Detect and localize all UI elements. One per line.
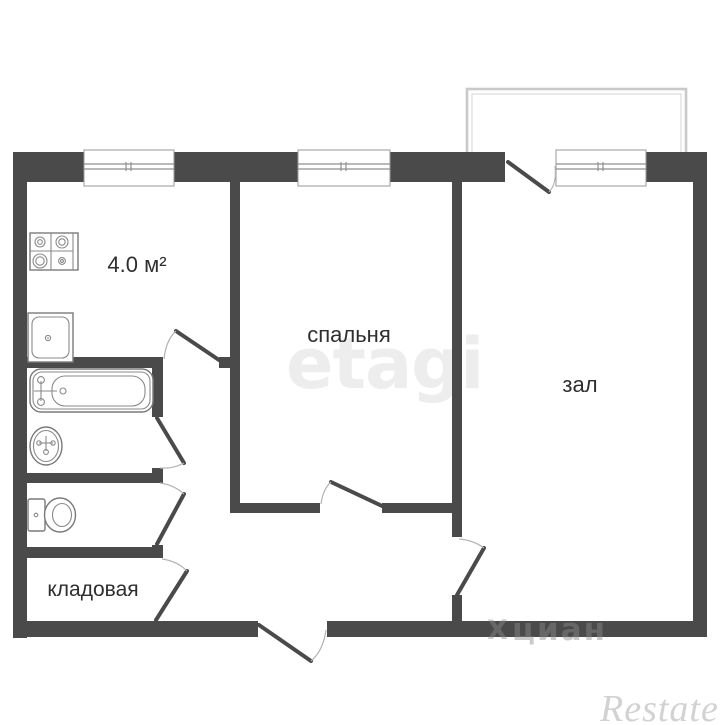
- toilet-door: [157, 483, 184, 544]
- bedroom-window: [298, 150, 390, 186]
- kitchen-door: [164, 331, 219, 360]
- washbasin-icon: [30, 427, 62, 465]
- wall-hall-west: [452, 182, 462, 537]
- cian-watermark: X циан: [487, 612, 607, 648]
- storage-label: кладовая: [47, 578, 138, 601]
- wall-right: [693, 152, 707, 637]
- balcony-window: [556, 150, 646, 186]
- toilet-icon: [28, 498, 76, 532]
- wall-left: [13, 152, 27, 638]
- balcony-outline: [467, 89, 686, 159]
- wall-hall-west-stub: [452, 595, 462, 621]
- hall-label: зал: [562, 372, 597, 397]
- bathtub-icon: [30, 369, 153, 412]
- kitchen-area-label: 4.0 м²: [107, 252, 166, 277]
- wall-bath-toilet-divider: [27, 473, 163, 483]
- wall-bedroom-south-a: [230, 503, 320, 513]
- hall-door: [457, 539, 484, 595]
- restate-watermark: Restate: [599, 688, 719, 725]
- floor-plan-page: etagi: [0, 0, 725, 725]
- wall-bottom-left: [13, 621, 258, 637]
- kitchen-sink-icon: [28, 313, 73, 362]
- bedroom-label: спальня: [307, 322, 391, 347]
- cian-watermark-text: циан: [512, 612, 607, 648]
- cian-logo-icon: X: [487, 615, 508, 646]
- storage-door: [156, 559, 187, 620]
- wall-bedroom-west: [230, 182, 240, 513]
- floor-plan-drawing: etagi: [0, 0, 725, 725]
- bedroom-door: [321, 482, 382, 506]
- wall-bedroom-south-b: [382, 503, 462, 513]
- entrance-door: [259, 625, 326, 661]
- kitchen-window: [84, 150, 174, 186]
- stove-icon: [30, 233, 78, 270]
- bathroom-door: [157, 418, 184, 468]
- wall-toilet-storage-divider: [27, 547, 163, 558]
